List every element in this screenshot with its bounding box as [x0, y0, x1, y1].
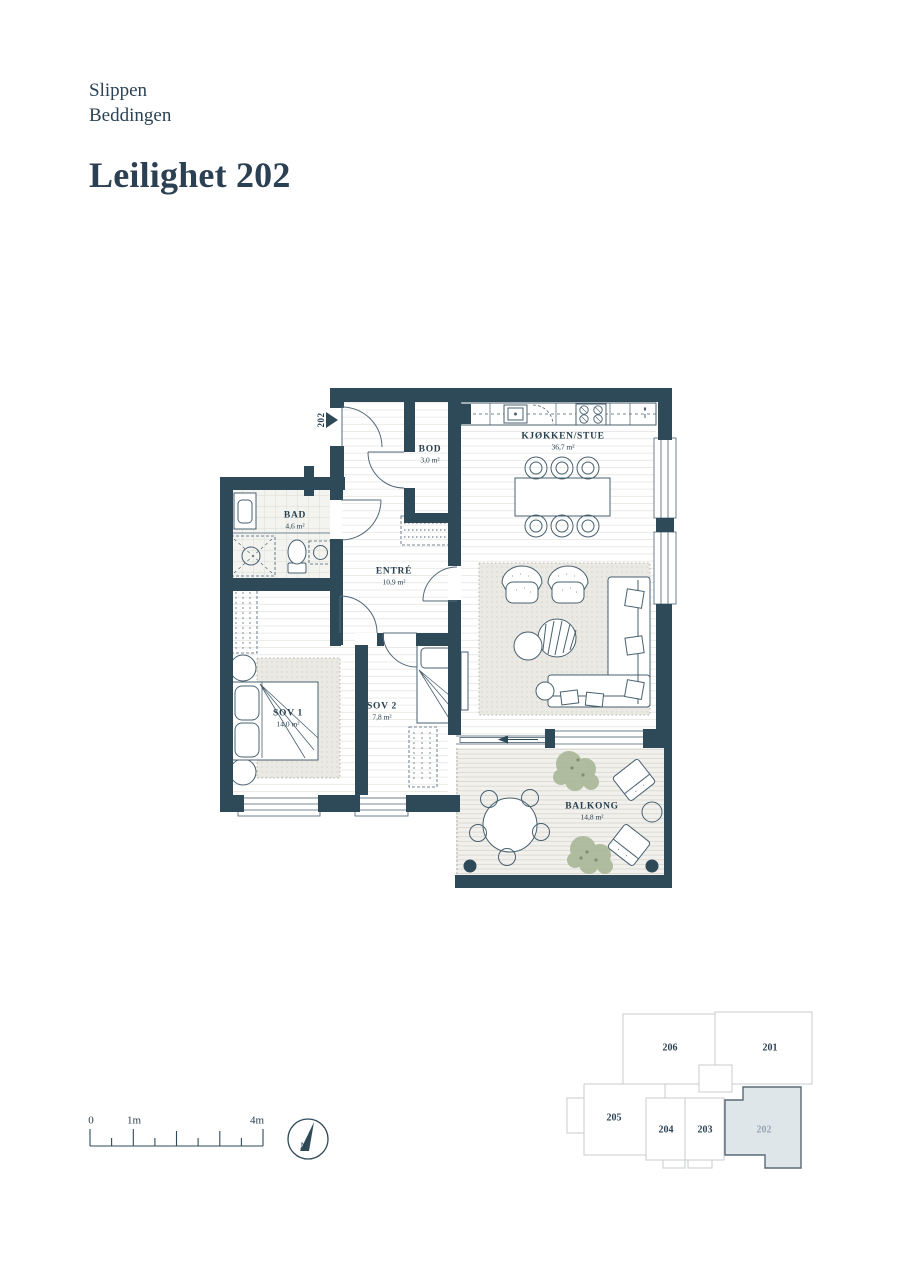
entrance-arrow-icon	[326, 412, 338, 428]
room-label-sov1: SOV 1 14,0 m²	[273, 709, 303, 730]
room-label-bod: BOD 3,0 m²	[419, 445, 442, 466]
project-name: Slippen	[89, 78, 291, 103]
page-title: Leilighet 202	[89, 154, 291, 196]
scale-tick-1m: 1m	[127, 1115, 141, 1128]
room-label-bad: BAD 4,6 m²	[284, 511, 306, 532]
room-label-kjokken-stue: KJØKKEN/STUE 36,7 m²	[521, 432, 604, 453]
unit-key-map	[567, 1012, 812, 1168]
unit-label-202-highlighted: 202	[757, 1124, 772, 1136]
living-area-furniture	[461, 563, 650, 715]
entrance-unit-number: 202	[316, 413, 326, 428]
page-header: Slippen Beddingen Leilighet 202	[89, 78, 291, 196]
unit-label-204: 204	[659, 1124, 674, 1136]
unit-label-203: 203	[698, 1124, 713, 1136]
room-label-balkong: BALKONG 14,8 m²	[565, 802, 618, 823]
unit-label-206: 206	[663, 1042, 678, 1054]
north-arrow-icon	[288, 1119, 328, 1159]
compass-north-label: N	[300, 1141, 306, 1151]
unit-label-205: 205	[607, 1112, 622, 1124]
unit-label-201: 201	[763, 1042, 778, 1054]
room-label-sov2: SOV 2 7,8 m²	[367, 702, 397, 723]
scale-tick-0: 0	[88, 1115, 94, 1128]
room-label-entre: ENTRÉ 10,9 m²	[376, 567, 412, 588]
building-name: Beddingen	[89, 103, 291, 128]
scale-tick-4m: 4m	[250, 1115, 264, 1128]
scale-bar	[90, 1129, 263, 1146]
